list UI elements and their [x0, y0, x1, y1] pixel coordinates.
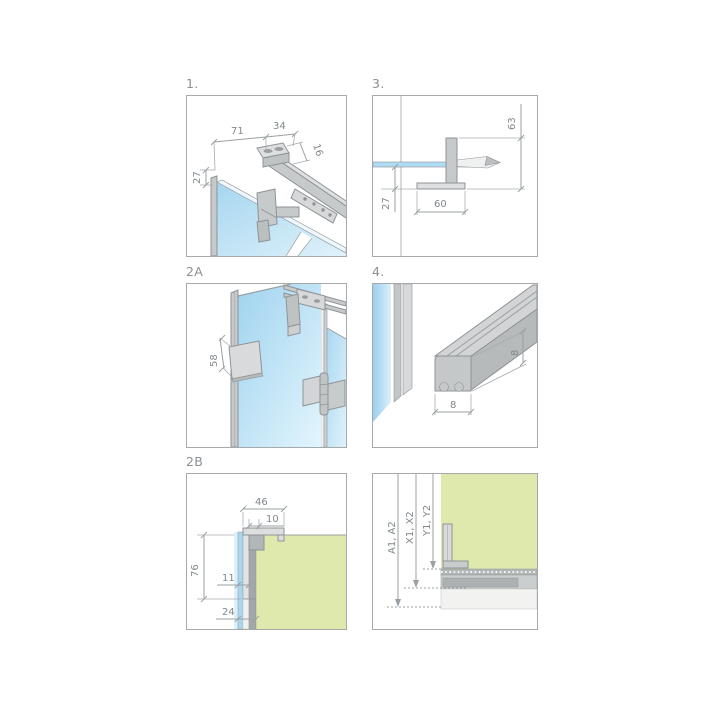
wall-surface — [256, 535, 346, 629]
svg-text:8: 8 — [510, 350, 521, 356]
dimension-63: 63 — [459, 104, 525, 192]
dimension-76: 76 — [190, 532, 241, 602]
svg-text:27: 27 — [192, 171, 203, 184]
panel-label-4: 4. — [372, 264, 385, 279]
svg-text:Y1, Y2: Y1, Y2 — [422, 505, 433, 537]
panel-detail-levels: Y1, Y2 X1, X2 A1, A2 — [372, 473, 538, 630]
panel-label-1: 1. — [186, 76, 199, 91]
svg-text:76: 76 — [190, 564, 201, 577]
wall-mounting-plate — [229, 341, 263, 382]
svg-text:60: 60 — [434, 199, 447, 210]
drawing-seal-profile: 8 8 — [373, 284, 537, 447]
dimension-46: 46 — [240, 497, 287, 526]
panel-detail-1: 71 34 16 27 — [186, 95, 347, 257]
instruction-sheet: 1. — [0, 0, 720, 720]
drawing-support-bar-isometric: 71 34 16 27 — [187, 96, 346, 256]
bar-tip — [457, 157, 500, 169]
svg-text:8: 8 — [450, 400, 456, 411]
panel-detail-2a: 58 — [186, 283, 347, 448]
dimension-27: 27 — [381, 164, 417, 212]
subfloor-layer — [441, 589, 537, 609]
svg-text:27: 27 — [381, 197, 392, 210]
panel-detail-2b: 46 10 76 11 — [186, 473, 347, 630]
svg-text:63: 63 — [507, 117, 518, 130]
dimension-10: 10 — [246, 514, 284, 529]
wall-surface — [441, 474, 537, 569]
panel-label-2b: 2B — [186, 454, 203, 469]
dimension-34: 34 — [266, 121, 298, 146]
svg-text:46: 46 — [255, 497, 268, 508]
svg-text:58: 58 — [209, 354, 220, 367]
svg-text:11: 11 — [222, 573, 235, 584]
level-line-y: Y1, Y2 — [422, 474, 441, 569]
drawing-glass-hinge-isometric: 58 — [187, 284, 346, 447]
panel-label-3: 3. — [372, 76, 385, 91]
dimension-16: 16 — [287, 142, 325, 164]
panel-label-2a: 2A — [186, 264, 203, 279]
seal-strip — [435, 285, 537, 392]
svg-text:34: 34 — [273, 121, 286, 132]
adhesive-layer — [441, 569, 537, 575]
drawing-floor-levels-section: Y1, Y2 X1, X2 A1, A2 — [373, 474, 537, 629]
panel-detail-4: 8 8 — [372, 283, 538, 448]
svg-text:A1, A2: A1, A2 — [387, 521, 398, 554]
wall-clamp — [257, 143, 289, 167]
panel-detail-3: 63 27 60 — [372, 95, 538, 257]
svg-text:16: 16 — [310, 143, 324, 159]
svg-text:24: 24 — [222, 607, 235, 618]
svg-text:X1, X2: X1, X2 — [405, 511, 416, 544]
dimension-8-width: 8 — [432, 394, 474, 415]
drawing-wall-profile-section: 46 10 76 11 — [187, 474, 346, 629]
glass-with-profile — [373, 284, 412, 422]
screed-layer — [441, 575, 537, 589]
drawing-support-bar-side: 63 27 60 — [373, 96, 537, 256]
svg-text:71: 71 — [231, 126, 244, 137]
bar-glass-clamp — [286, 294, 300, 336]
svg-text:10: 10 — [266, 514, 279, 525]
dimension-60: 60 — [414, 191, 468, 215]
